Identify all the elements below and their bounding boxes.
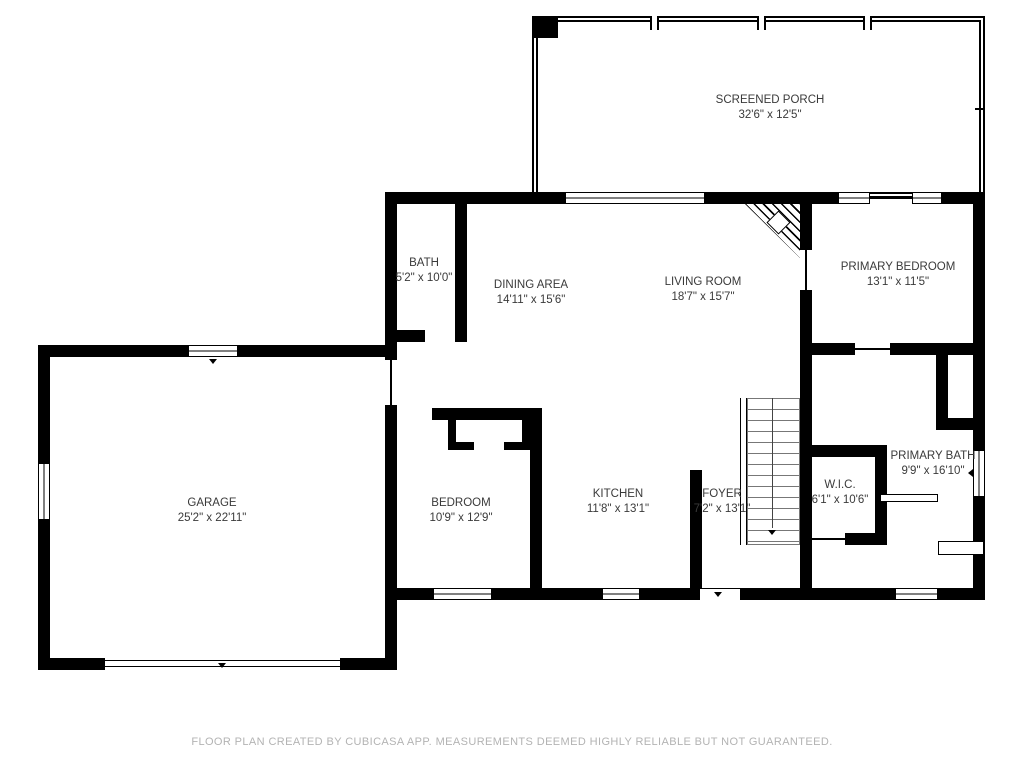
wall-segment	[38, 520, 50, 670]
room-dims: 13'1" x 11'5"	[841, 275, 956, 290]
corner-stair	[745, 204, 800, 258]
window	[188, 345, 238, 357]
window	[433, 588, 492, 600]
bath-door-tick	[390, 278, 395, 286]
wall-segment	[238, 345, 385, 357]
room-label-screened-porch: SCREENED PORCH 32'6" x 12'5"	[716, 93, 825, 123]
wic-door-line	[812, 538, 845, 540]
room-name: FOYER	[694, 487, 751, 502]
window-tick	[209, 359, 217, 364]
wall-segment	[38, 345, 50, 463]
room-label-dining-area: DINING AREA 14'11" x 15'6"	[494, 278, 568, 308]
wall-segment	[740, 588, 895, 600]
wall-segment	[340, 658, 397, 670]
floor-plan: SCREENED PORCH 32'6" x 12'5" BATH 5'2" x…	[0, 0, 1024, 768]
wall-segment	[800, 204, 812, 250]
room-label-kitchen: KITCHEN 11'8" x 13'1"	[587, 487, 649, 517]
wall-segment	[385, 192, 565, 204]
room-dims: 10'9" x 12'9"	[429, 511, 492, 526]
room-dims: 25'2" x 22'11"	[178, 511, 247, 526]
wall-segment	[812, 343, 855, 355]
entry-door-arrow	[714, 592, 722, 597]
room-dims: 18'7" x 15'7"	[665, 290, 742, 305]
closet-wall	[936, 418, 985, 430]
window	[895, 588, 938, 600]
room-dims: 11'8" x 13'1"	[587, 502, 649, 517]
wall-segment	[432, 408, 542, 420]
window	[602, 588, 640, 600]
wall-segment	[938, 588, 985, 600]
wall-segment	[973, 192, 985, 450]
stair-center-line	[772, 398, 773, 528]
bath-counter	[880, 494, 938, 502]
wall-segment	[385, 330, 425, 342]
room-label-wic: W.I.C. 6'1" x 10'6"	[812, 478, 869, 508]
room-label-bedroom: BEDROOM 10'9" x 12'9"	[429, 496, 492, 526]
porch-mullion	[757, 16, 766, 30]
wall-segment	[38, 658, 105, 670]
wall-segment	[800, 290, 812, 600]
wic-door-tick	[824, 448, 832, 453]
disclaimer-text: FLOOR PLAN CREATED BY CUBICASA APP. MEAS…	[191, 736, 832, 748]
porch-mullion	[863, 16, 872, 30]
window	[38, 463, 50, 520]
closet-wall	[448, 442, 474, 450]
room-name: BATH	[396, 256, 453, 271]
porch-side-mark	[975, 108, 985, 110]
entry-door-threshold	[700, 588, 740, 589]
room-name: PRIMARY BEDROOM	[841, 260, 956, 275]
wall-opening-line	[870, 197, 912, 199]
window	[912, 192, 942, 204]
primary-bath-door-line	[855, 348, 890, 350]
closet-wall	[504, 442, 530, 450]
room-label-primary-bedroom: PRIMARY BEDROOM 13'1" x 11'5"	[841, 260, 956, 290]
wall-segment	[845, 533, 887, 545]
bath-vanity	[938, 541, 984, 555]
room-name: GARAGE	[178, 496, 247, 511]
room-name: BEDROOM	[429, 496, 492, 511]
room-dims: 32'6" x 12'5"	[716, 108, 825, 123]
stair-stringer	[740, 398, 747, 545]
porch-mullion	[650, 16, 659, 30]
room-name: KITCHEN	[587, 487, 649, 502]
wall-segment	[530, 408, 542, 600]
porch-corner-post	[532, 16, 558, 38]
room-dims: 7'2" x 13'1"	[694, 502, 751, 517]
primary-bedroom-door-line	[805, 250, 807, 290]
room-dims: 9'9" x 16'10"	[891, 464, 976, 479]
room-label-primary-bath: PRIMARY BATH 9'9" x 16'10"	[891, 449, 976, 479]
window	[838, 192, 870, 204]
wall-segment	[38, 345, 188, 357]
room-name: PRIMARY BATH	[891, 449, 976, 464]
wall-segment	[455, 192, 467, 342]
wall-segment	[705, 192, 838, 204]
wall-segment	[640, 588, 700, 600]
room-label-bath: BATH 5'2" x 10'0"	[396, 256, 453, 286]
wall-segment	[890, 343, 985, 355]
room-name: W.I.C.	[812, 478, 869, 493]
stair-down-arrow	[768, 530, 776, 535]
wall-segment	[385, 405, 397, 670]
garage-door-arrow	[218, 663, 226, 668]
room-dims: 5'2" x 10'0"	[396, 271, 453, 286]
staircase-treads	[747, 398, 800, 545]
room-label-garage: GARAGE 25'2" x 22'11"	[178, 496, 247, 526]
room-label-foyer: FOYER 7'2" x 13'1"	[694, 487, 751, 517]
wall-segment	[492, 588, 602, 600]
room-name: LIVING ROOM	[665, 275, 742, 290]
room-name: SCREENED PORCH	[716, 93, 825, 108]
garage-entry-door-line	[390, 360, 392, 405]
bath-door-tick	[457, 278, 462, 286]
window	[565, 192, 705, 204]
room-label-living-room: LIVING ROOM 18'7" x 15'7"	[665, 275, 742, 305]
room-name: DINING AREA	[494, 278, 568, 293]
room-dims: 6'1" x 10'6"	[812, 493, 869, 508]
room-dims: 14'11" x 15'6"	[494, 293, 568, 308]
